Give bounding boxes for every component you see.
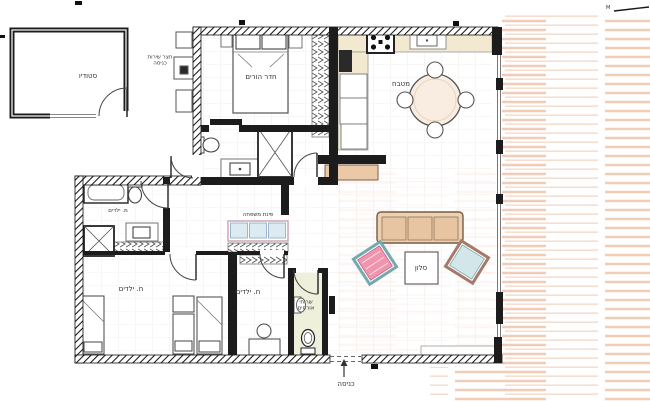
scale-mark-label: M	[606, 6, 610, 12]
studio-room	[12, 30, 129, 121]
dining-table	[409, 74, 461, 126]
room-label-kids-bathroom: מ. ילדים	[108, 208, 127, 214]
room-label-family-corner: פינת משפחה	[243, 212, 273, 218]
room-label-entrance: כניסה	[337, 380, 354, 388]
room-label-master-bedroom: חדר הורים	[245, 73, 276, 81]
scale-mark-line	[614, 7, 649, 11]
room-label-living-room: סלון	[415, 264, 427, 272]
room-label-kids-room-2: ח. ילדים	[236, 288, 261, 296]
service-yard-units	[174, 32, 194, 112]
room-label-guest-wc: שרותי אורחים	[298, 300, 315, 313]
guest-wc-line2: אורחים	[298, 306, 315, 312]
service-yard-line2: כניסה	[147, 61, 172, 67]
room-label-kitchen: מטבח	[392, 80, 410, 88]
room-label-kids-room-1: ח. ילדים	[119, 285, 144, 293]
entrance-opening	[330, 357, 361, 362]
window-wall-east	[496, 55, 503, 337]
window-sill-step	[421, 346, 495, 355]
floor-plan-drawing	[0, 0, 650, 401]
family-sofa	[228, 221, 288, 241]
room-label-studio: סטודיו	[79, 72, 97, 80]
floor-plan-canvas: סטודיו חצר שירות כניסה חדר הורים מטבח פי…	[0, 0, 650, 401]
living-sofa	[377, 212, 463, 243]
room-label-service-yard: חצר שירות כניסה	[147, 55, 172, 68]
